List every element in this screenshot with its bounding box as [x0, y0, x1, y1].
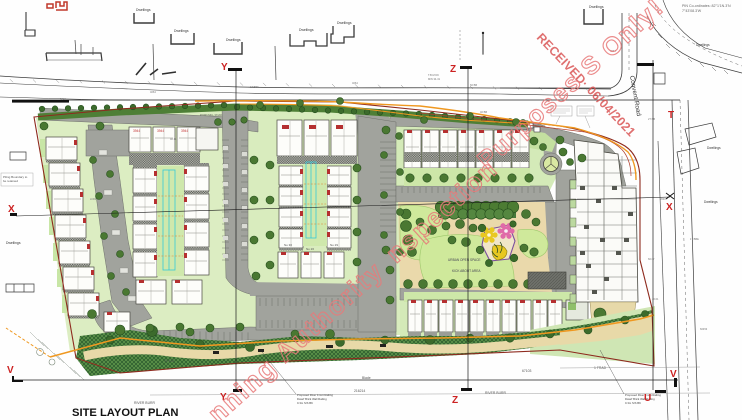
svg-text:T.B.M DK: T.B.M DK [428, 73, 439, 77]
svg-text:Dwellings: Dwellings [337, 21, 352, 25]
svg-text:X: X [8, 204, 15, 215]
svg-text:RIVER BURR: RIVER BURR [134, 401, 155, 405]
svg-text:SITE LAYOUT PLAN: SITE LAYOUT PLAN [72, 407, 179, 419]
svg-text:3944: 3944 [181, 129, 188, 133]
svg-text:X: X [666, 202, 673, 213]
svg-text:Dwellings: Dwellings [299, 28, 314, 32]
svg-text:Dwellings: Dwellings [226, 38, 241, 42]
svg-text:V: V [670, 369, 677, 380]
svg-text:2040: 2040 [660, 197, 666, 201]
svg-text:URBAN OPEN SPACE: URBAN OPEN SPACE [448, 258, 481, 262]
svg-text:3944: 3944 [133, 129, 140, 133]
svg-text:Z: Z [450, 64, 456, 75]
svg-text:216214: 216214 [354, 389, 365, 393]
svg-text:60 BB: 60 BB [470, 83, 477, 87]
svg-text:No 30: No 30 [284, 243, 292, 247]
svg-text:Dwellings: Dwellings [707, 146, 721, 150]
svg-text:No 26: No 26 [306, 247, 314, 251]
svg-text:Dwellings: Dwellings [704, 200, 718, 204]
svg-text:Y: Y [221, 62, 228, 73]
svg-text:T: T [668, 110, 674, 121]
svg-text:LN06: LN06 [90, 197, 97, 201]
svg-text:67103: 67103 [522, 369, 532, 373]
svg-text:3944: 3944 [157, 129, 164, 133]
svg-text:No 29: No 29 [330, 243, 338, 247]
svg-text:4064: 4064 [150, 90, 156, 94]
svg-text:MIN 34-31: MIN 34-31 [428, 77, 441, 81]
svg-text:Z: Z [452, 395, 458, 406]
svg-text:60.07: 60.07 [648, 257, 655, 261]
svg-text:7°43'08.3'W: 7°43'08.3'W [682, 9, 702, 13]
svg-text:4064: 4064 [352, 81, 358, 85]
svg-text:PIN Co-ordinates: 82°1'1N.3'N: PIN Co-ordinates: 82°1'1N.3'N [682, 4, 731, 8]
svg-text:U: U [644, 393, 651, 404]
svg-text:Dwellings: Dwellings [136, 8, 151, 12]
svg-text:POND MILL ROAD: POND MILL ROAD [200, 113, 222, 117]
svg-text:Dwellings: Dwellings [589, 5, 604, 9]
svg-text:0.3m S/S BK: 0.3m S/S BK [297, 401, 313, 405]
svg-text:17 BBE: 17 BBE [250, 85, 259, 89]
svg-text:1 FRAD: 1 FRAD [594, 366, 607, 370]
svg-text:Blade: Blade [362, 376, 371, 380]
svg-text:60453: 60453 [700, 327, 708, 331]
svg-text:9040: 9040 [60, 97, 66, 101]
svg-text:Dwellings: Dwellings [174, 29, 189, 33]
svg-text:Dwellings: Dwellings [6, 241, 21, 245]
svg-text:KICK ABOUT AREA: KICK ABOUT AREA [452, 269, 481, 273]
svg-text:V: V [7, 365, 14, 376]
svg-text:71 122: 71 122 [164, 359, 174, 363]
svg-text:Dwellings: Dwellings [696, 43, 710, 47]
svg-text:40.11: 40.11 [170, 137, 177, 141]
svg-text:RIVER BURR: RIVER BURR [485, 391, 506, 395]
svg-text:40 BB: 40 BB [480, 110, 487, 114]
svg-text:17 BBE: 17 BBE [690, 237, 699, 241]
svg-text:40.01: 40.01 [652, 297, 659, 301]
svg-text:27 BB: 27 BB [648, 117, 655, 121]
svg-text:be retained: be retained [3, 179, 18, 183]
svg-text:0.3m S/S BK: 0.3m S/S BK [625, 401, 641, 405]
